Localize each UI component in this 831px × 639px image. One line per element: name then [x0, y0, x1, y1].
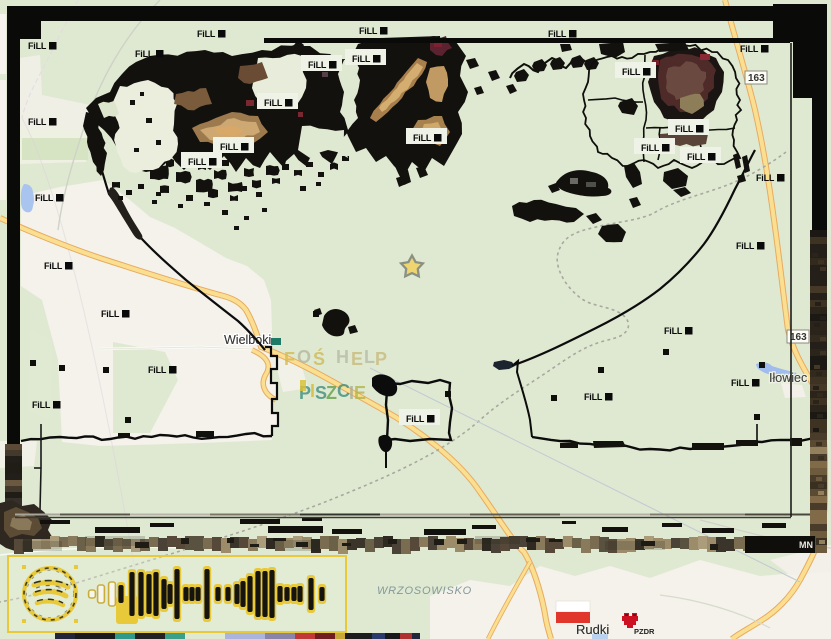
svg-text:H: H [336, 347, 350, 367]
svg-text:P: P [375, 349, 388, 369]
svg-text:FiLL: FiLL [352, 54, 371, 64]
svg-text:FiLL: FiLL [308, 60, 327, 70]
svg-text:F: F [284, 349, 296, 369]
svg-text:FiLL: FiLL [664, 326, 683, 336]
svg-text:163: 163 [790, 332, 807, 343]
svg-text:FiLL: FiLL [406, 414, 425, 424]
svg-text:Iłowiec: Iłowiec [769, 371, 807, 385]
svg-text:FiLL: FiLL [35, 193, 54, 203]
svg-text:FiLL: FiLL [101, 309, 120, 319]
svg-text:FiLL: FiLL [359, 26, 378, 36]
svg-text:WRZOSOWISKO: WRZOSOWISKO [377, 585, 472, 597]
svg-text:FiLL: FiLL [413, 133, 432, 143]
svg-text:E: E [354, 383, 367, 403]
svg-text:FiLL: FiLL [740, 44, 759, 54]
svg-text:FiLL: FiLL [44, 261, 63, 271]
svg-text:PZDR: PZDR [634, 627, 655, 636]
svg-text:FiLL: FiLL [641, 143, 660, 153]
svg-text:Ś: Ś [313, 348, 326, 369]
svg-text:163: 163 [748, 73, 765, 84]
svg-text:FiLL: FiLL [622, 67, 641, 77]
svg-text:FiLL: FiLL [264, 98, 283, 108]
svg-text:FiLL: FiLL [675, 124, 694, 134]
svg-text:MN: MN [799, 540, 813, 550]
svg-text:O: O [297, 347, 312, 367]
svg-text:FiLL: FiLL [548, 29, 567, 39]
svg-text:FiLL: FiLL [197, 29, 216, 39]
svg-text:FiLL: FiLL [32, 400, 51, 410]
svg-text:FiLL: FiLL [135, 49, 154, 59]
svg-text:FiLL: FiLL [736, 241, 755, 251]
svg-text:FiLL: FiLL [220, 142, 239, 152]
svg-text:E: E [351, 349, 364, 369]
svg-text:Z: Z [326, 383, 338, 403]
svg-text:FiLL: FiLL [731, 378, 750, 388]
svg-text:FiLL: FiLL [584, 392, 603, 402]
svg-text:FiLL: FiLL [687, 152, 706, 162]
svg-text:FiLL: FiLL [188, 157, 207, 167]
svg-text:FiLL: FiLL [756, 173, 775, 183]
svg-text:Wielboki: Wielboki [224, 333, 271, 347]
svg-text:FiLL: FiLL [148, 365, 167, 375]
svg-text:FiLL: FiLL [28, 41, 47, 51]
svg-text:FiLL: FiLL [28, 117, 47, 127]
svg-text:L: L [364, 347, 376, 367]
